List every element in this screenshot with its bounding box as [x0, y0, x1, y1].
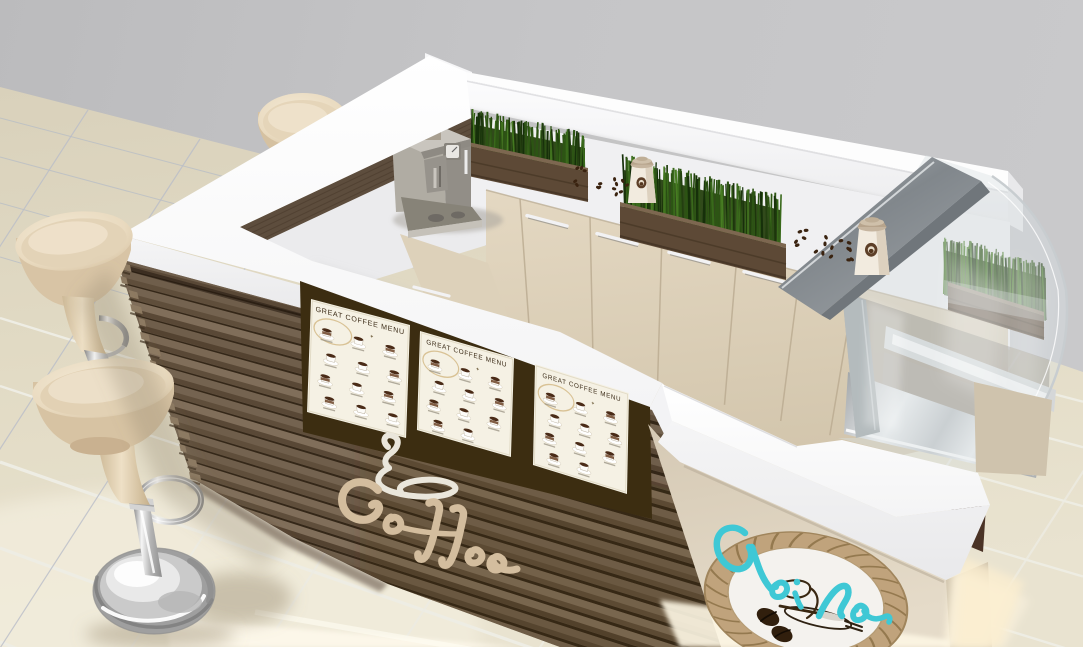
svg-text:✦: ✦	[476, 366, 480, 373]
svg-text:✦: ✦	[591, 400, 595, 407]
svg-text:✦: ✦	[370, 334, 374, 341]
